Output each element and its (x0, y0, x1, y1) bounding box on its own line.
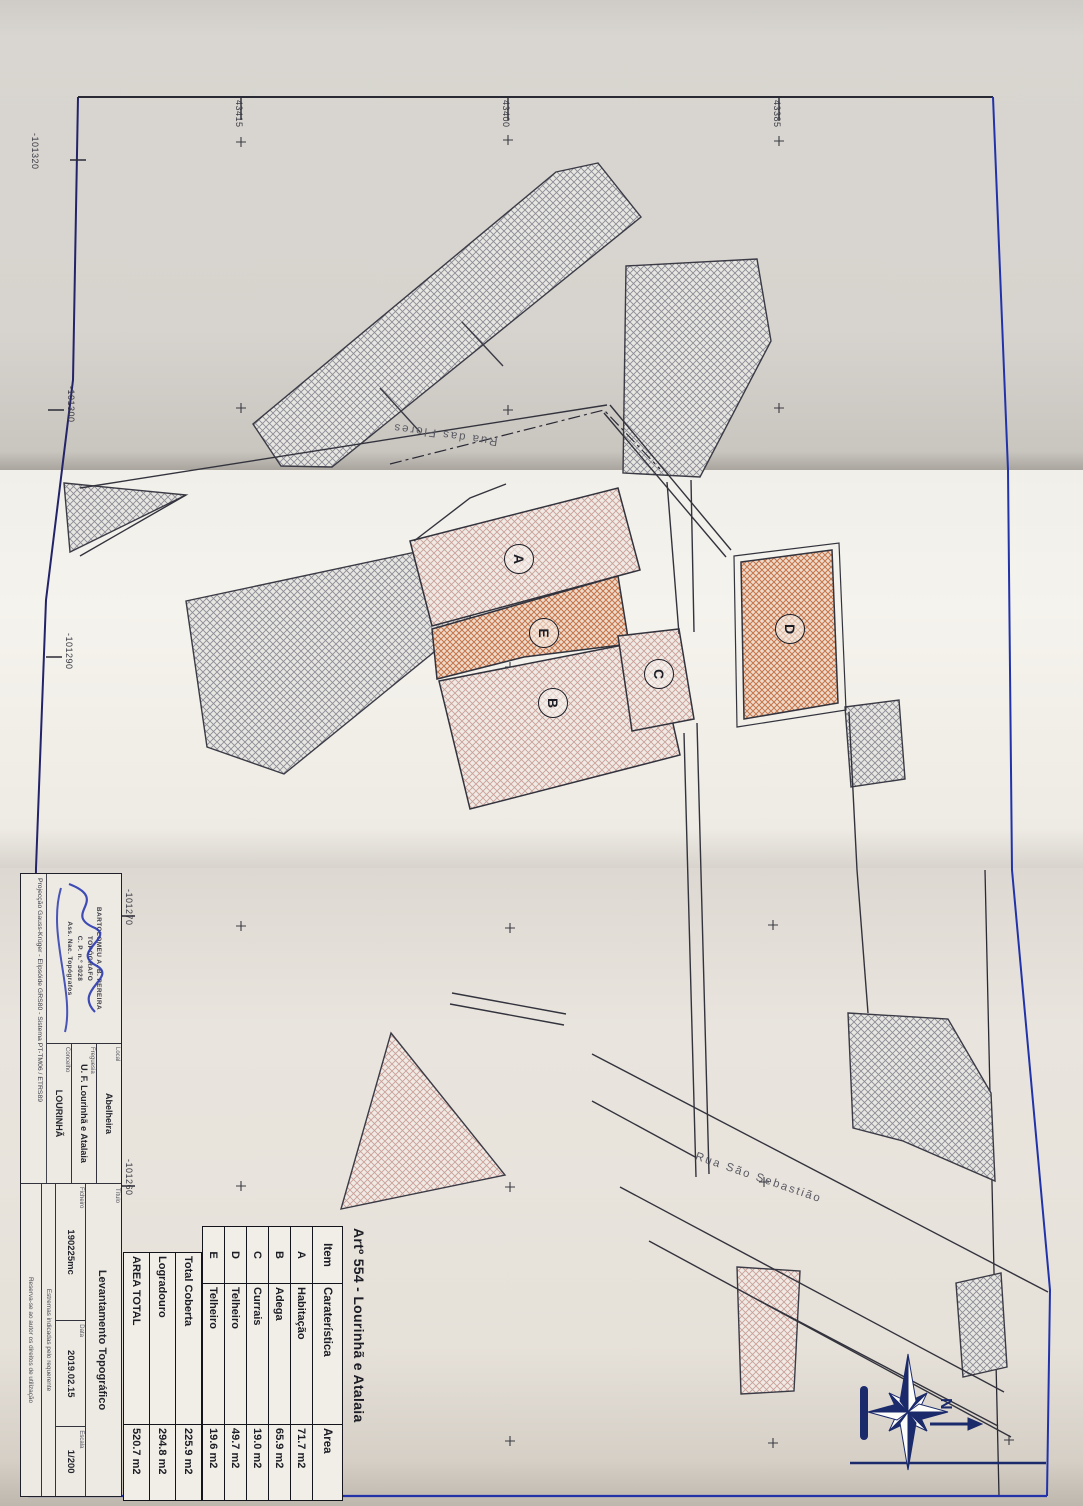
field-escala-value: 1/200 (65, 1430, 76, 1493)
row-area: 71.7 m2 (291, 1425, 313, 1501)
field-freguesia: Freguesia U. F. Lourinhã e Atalaia (71, 1044, 96, 1183)
grid-label-left-3: -101290 (64, 633, 74, 670)
totals-row: AREA TOTAL 520.7 m2 (124, 1253, 150, 1501)
total-value: 225.9 m2 (176, 1425, 202, 1501)
surveyed-buildings (410, 488, 846, 809)
table-row: C Currais 19.0 m2 (247, 1227, 269, 1501)
field-concelho: Concelho LOURINHÃ (47, 1044, 71, 1183)
row-item: B (269, 1227, 291, 1284)
header-item: Item (313, 1227, 343, 1284)
row-caracteristica: Adega (269, 1284, 291, 1425)
row-item: A (291, 1227, 313, 1284)
building-label-A: A (504, 544, 534, 574)
field-freguesia-value: U. F. Lourinhã e Atalaia (79, 1047, 89, 1180)
field-data-value: 2019.02.15 (65, 1324, 76, 1423)
note-direitos: Reserva-se ao autor os direitos de utili… (21, 1184, 41, 1496)
total-label: Total Coberta (176, 1253, 202, 1425)
field-ficheiro-label: Ficheiro (78, 1187, 84, 1317)
stamp-bar (860, 1386, 868, 1440)
grid-label-left-4: -101270 (124, 889, 134, 926)
row-caracteristica: Habitação (291, 1284, 313, 1425)
grid-label-left-1: -101320 (30, 133, 40, 170)
signature (49, 876, 119, 1040)
total-value: 294.8 m2 (150, 1425, 176, 1501)
row-area: 65.9 m2 (269, 1425, 291, 1501)
field-freguesia-label: Freguesia (89, 1047, 95, 1180)
field-titulo-value: Levantamento Topográfico (96, 1188, 108, 1492)
row-area: 19.6 m2 (203, 1425, 225, 1501)
totals-row: Total Coberta 225.9 m2 (176, 1253, 202, 1501)
grid-label-top-3: 43385 (772, 100, 782, 128)
row-item: E (203, 1227, 225, 1284)
header-area: Area (313, 1425, 343, 1501)
table-row: D Telheiro 49.7 m2 (225, 1227, 247, 1501)
row-caracteristica: Currais (247, 1284, 269, 1425)
field-ficheiro: Ficheiro 190225mc (56, 1184, 85, 1321)
field-escala: Escala 1/200 (56, 1427, 85, 1496)
grid-label-left-2: -101300 (66, 386, 76, 423)
field-local-value: Abelheira (104, 1047, 114, 1180)
row-area: 49.7 m2 (225, 1425, 247, 1501)
field-concelho-label: Concelho (64, 1047, 70, 1180)
area-table-block: Artº 554 - Lourinhã e Atalaia Item Carat… (120, 1226, 367, 1504)
field-data: Data 2019.02.15 (56, 1321, 85, 1427)
building-label-E: E (529, 618, 559, 648)
total-label: Logradouro (150, 1253, 176, 1425)
building-label-C: C (644, 659, 674, 689)
scanned-survey-sheet: 43415 43400 43385 -101320 -101300 -10129… (0, 0, 1083, 1506)
header-caracteristica: Caraterística (313, 1284, 343, 1425)
total-label: AREA TOTAL (124, 1253, 150, 1425)
field-ficheiro-value: 190225mc (65, 1187, 76, 1317)
surveyor-stamp: BARTOLOMEU A. B. PEREIRA TOPÓGRAFO C. P.… (47, 874, 121, 1044)
area-totals-table: Total Coberta 225.9 m2 Logradouro 294.8 … (123, 1252, 202, 1501)
north-label: N (936, 1398, 954, 1410)
field-data-label: Data (78, 1324, 84, 1423)
title-block: BARTOLOMEU A. B. PEREIRA TOPÓGRAFO C. P.… (20, 873, 122, 1497)
field-local: Local Abelheira (96, 1044, 121, 1183)
field-escala-label: Escala (78, 1430, 84, 1493)
road-axis-dashdot (390, 410, 660, 469)
grid-label-top-1: 43415 (234, 100, 244, 128)
row-item: C (247, 1227, 269, 1284)
field-titulo: Título Levantamento Topográfico (85, 1184, 121, 1496)
row-caracteristica: Telheiro (225, 1284, 247, 1425)
grid-label-left-5: -101260 (124, 1159, 134, 1196)
field-concelho-value: LOURINHÃ (54, 1047, 64, 1180)
table-row: A Habitação 71.7 m2 (291, 1227, 313, 1501)
building-label-D: D (775, 614, 805, 644)
area-table: Item Caraterística Area A Habitação 71.7… (202, 1226, 343, 1501)
table-row: B Adega 65.9 m2 (269, 1227, 291, 1501)
grid-label-top-2: 43400 (501, 100, 511, 128)
row-item: D (225, 1227, 247, 1284)
article-title: Artº 554 - Lourinhã e Atalaia (343, 1226, 367, 1504)
field-titulo-label: Título (114, 1188, 120, 1492)
table-header-row: Item Caraterística Area (313, 1227, 343, 1501)
field-local-label: Local (114, 1047, 120, 1180)
row-area: 19.0 m2 (247, 1425, 269, 1501)
building-label-B: B (538, 688, 568, 718)
projection-note: Projecção Gauss-Krüger - Elipsóide GRS80… (33, 874, 47, 1183)
table-row: E Telheiro 19.6 m2 (203, 1227, 225, 1501)
row-caracteristica: Telheiro (203, 1284, 225, 1425)
note-estremas: Estremas indicadas pelo requerente (41, 1184, 55, 1496)
totals-row: Logradouro 294.8 m2 (150, 1253, 176, 1501)
total-value: 520.7 m2 (124, 1425, 150, 1501)
